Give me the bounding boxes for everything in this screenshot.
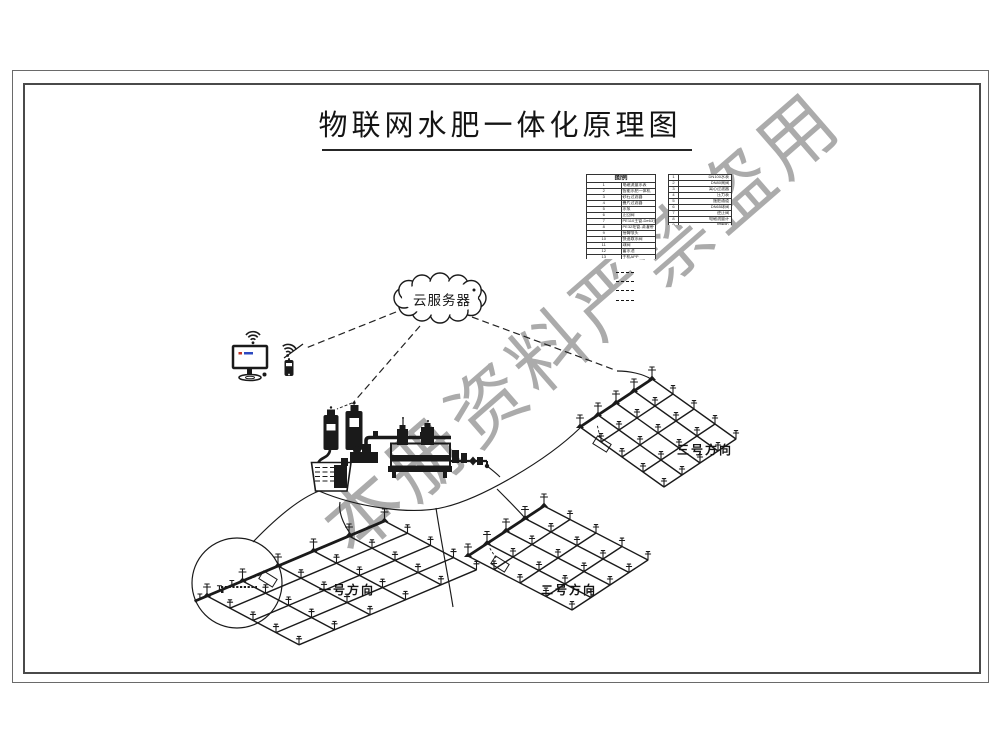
legend-row-no: 13	[587, 255, 622, 260]
legend-title: 图例	[587, 175, 656, 183]
field-1-label: 一号方向	[319, 581, 375, 598]
legend-row-label: 手机APP	[621, 255, 656, 260]
legend-row-label: 智能水肥一体机	[621, 189, 656, 195]
spec-row: 9控制柜	[669, 223, 732, 226]
page-title: 物联网水肥一体化原理图	[318, 102, 681, 144]
spec-table-wrap: 1DN100水表2DN80闸阀3离心过滤器4压力表5施肥通道6DN65球阀7逆止…	[668, 174, 732, 225]
schematic-page: 本册资料严禁盗用 物联网水肥一体化原理图 图例 1电磁流量水表2智能水肥一体机3…	[0, 0, 1000, 750]
legend-row-label: PE110主管-De63支管	[621, 219, 656, 225]
legend-row-label: PE32毛管-滴灌带	[621, 225, 656, 231]
legend-row: 13手机APP	[587, 255, 656, 260]
line-style-sample	[616, 290, 634, 291]
line-style-sample	[616, 281, 634, 282]
legend-table-wrap: 图例 1电磁流量水表2智能水肥一体机3砂石过滤器4叠片过滤器5水泵6止回阀7PE…	[586, 174, 656, 259]
cloud-server-label: 云服务器	[400, 289, 484, 309]
frame-inner	[23, 83, 981, 674]
line-style-sample	[616, 272, 634, 273]
title-underline	[322, 149, 692, 151]
legend-table: 图例 1电磁流量水表2智能水肥一体机3砂石过滤器4叠片过滤器5水泵6止回阀7PE…	[586, 174, 656, 259]
spec-row-value: 控制柜	[679, 223, 732, 226]
field-2-label: 二号方向	[541, 581, 597, 598]
spec-row-no: 9	[669, 223, 679, 226]
spec-table: 1DN100水表2DN80闸阀3离心过滤器4压力表5施肥通道6DN65球阀7逆止…	[668, 174, 732, 225]
line-style-sample	[616, 300, 634, 301]
field-3-label: 三号方向	[677, 441, 733, 458]
line-style-samples	[616, 272, 634, 309]
